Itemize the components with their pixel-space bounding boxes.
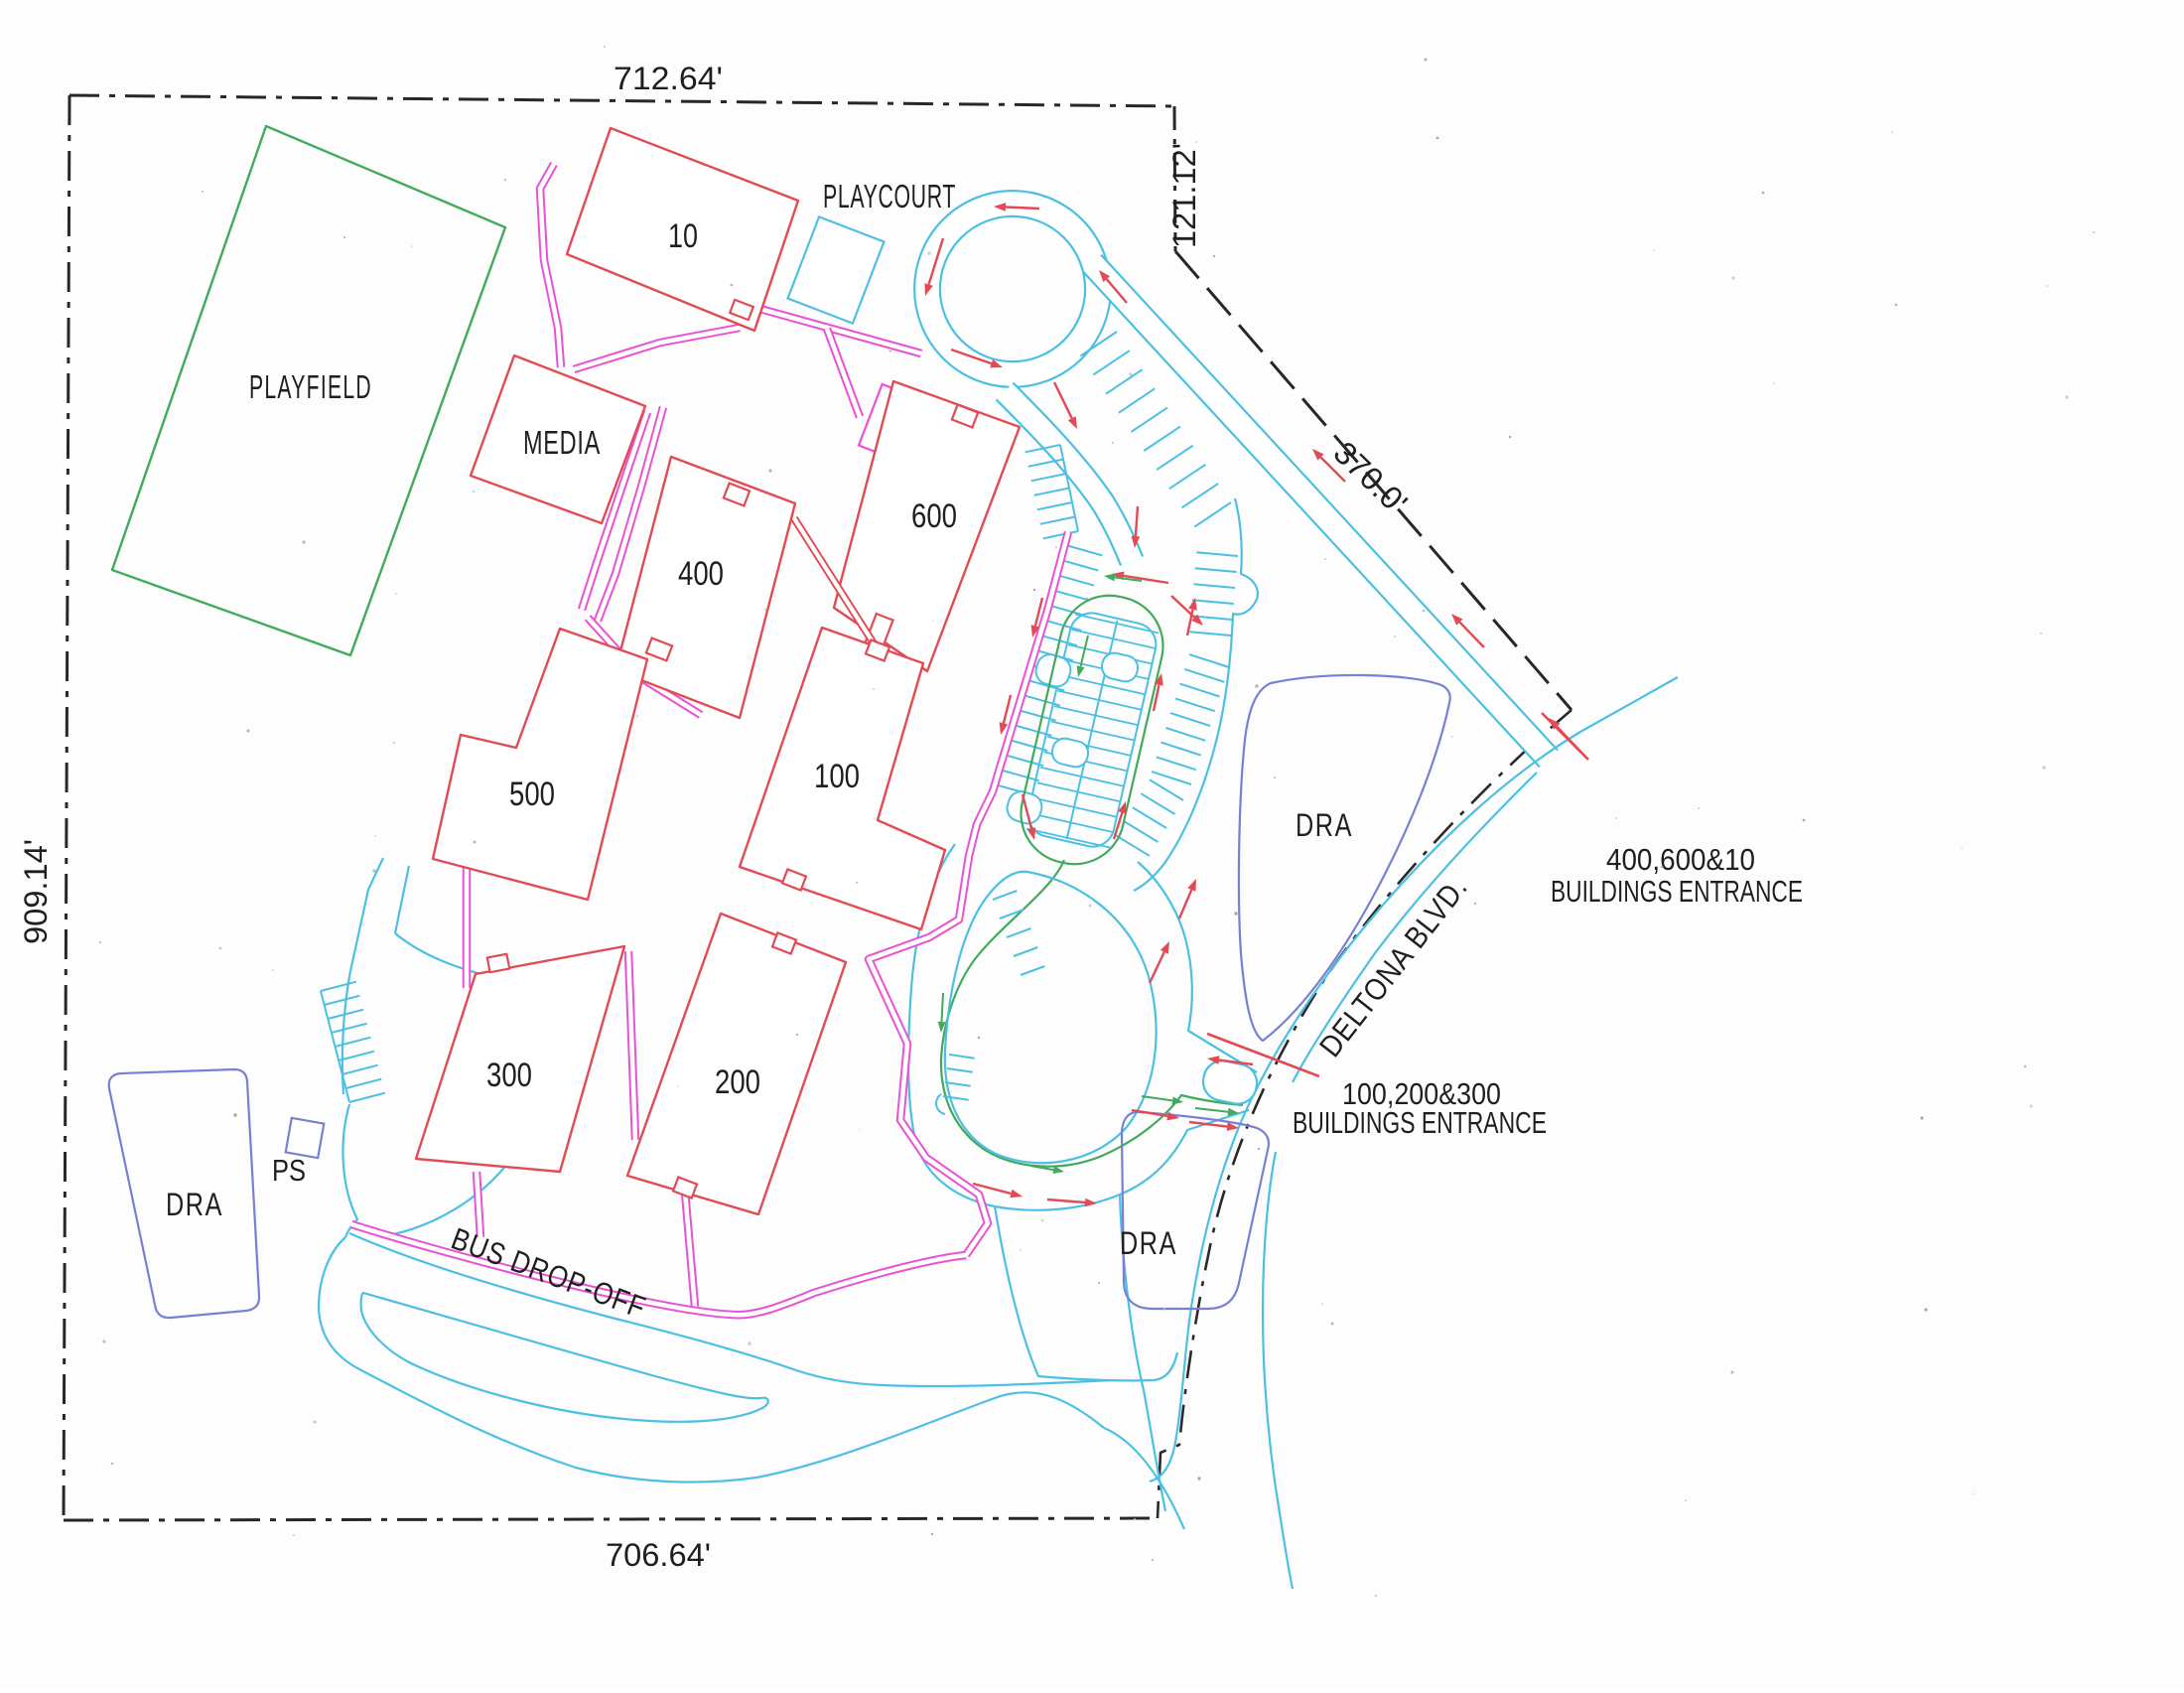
svg-text:200: 200 (715, 1063, 760, 1101)
svg-text:MEDIA: MEDIA (523, 424, 601, 461)
svg-text:706.64': 706.64' (606, 1537, 711, 1573)
svg-text:BUILDINGS ENTRANCE: BUILDINGS ENTRANCE (1293, 1105, 1547, 1140)
svg-text:DRA: DRA (1296, 807, 1353, 843)
svg-text:400: 400 (678, 555, 724, 593)
svg-text:121.12': 121.12' (1166, 143, 1202, 248)
svg-text:BUILDINGS ENTRANCE: BUILDINGS ENTRANCE (1551, 874, 1803, 909)
svg-text:PLAYFIELD: PLAYFIELD (249, 368, 372, 405)
svg-text:712.64': 712.64' (614, 61, 723, 96)
svg-text:DRA: DRA (166, 1187, 223, 1222)
svg-text:DRA: DRA (1120, 1225, 1177, 1261)
svg-text:500: 500 (509, 776, 555, 813)
svg-text:909.14': 909.14' (18, 839, 54, 944)
svg-text:600: 600 (911, 497, 957, 535)
svg-text:10: 10 (668, 217, 698, 255)
svg-text:PS: PS (272, 1153, 306, 1188)
svg-text:400,600&10: 400,600&10 (1606, 842, 1755, 877)
svg-text:PLAYCOURT: PLAYCOURT (823, 178, 956, 214)
svg-text:300: 300 (486, 1057, 532, 1094)
svg-text:100: 100 (814, 758, 860, 795)
